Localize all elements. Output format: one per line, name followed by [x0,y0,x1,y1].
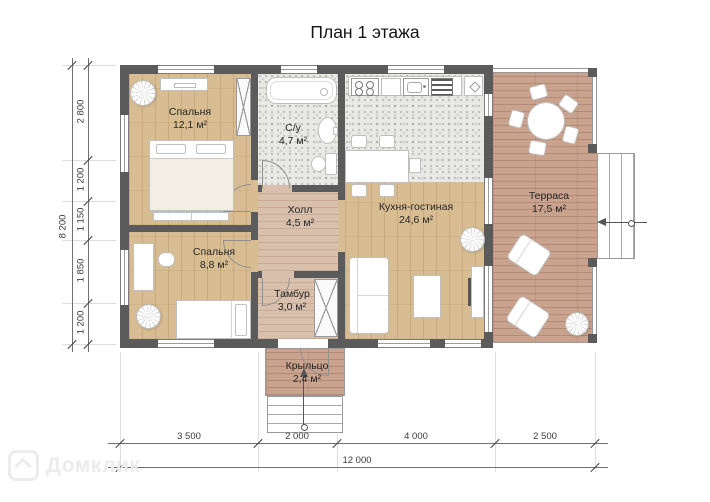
room-area: 4,5 м² [286,217,314,230]
extension-line [258,352,259,472]
room-name: Терраса [529,190,569,203]
page-title: План 1 этажа [240,22,490,43]
sofa-cushion-line [358,295,388,296]
burner [366,88,374,96]
room-area: 12,1 м² [169,119,211,132]
dimension-line-vertical-total [72,58,73,352]
room-label-hall: Холл 4,5 м² [286,204,314,230]
window [445,339,481,348]
dim-label: 3 500 [159,431,219,442]
bed [149,140,234,211]
bed-blanket-line [231,301,232,338]
room-area: 4,7 м² [279,135,307,148]
room-area: 8,8 м² [193,259,235,272]
coffee-table [413,275,441,318]
room-name: Крыльцо [286,360,329,373]
dim-label: 1 200 [76,158,87,202]
window [281,65,317,74]
dresser [160,78,208,91]
door-leaf [223,240,251,241]
dim-label-total: 12 000 [327,455,387,466]
watermark-text: Домклик [46,454,140,478]
chair [379,135,395,148]
wardrobe [314,279,338,337]
watermark-logo-icon [8,450,39,481]
dim-label: 2 800 [76,90,87,134]
kitchen-counter [348,76,462,96]
terrace-edge [493,342,597,343]
window [378,339,430,348]
fridge [464,76,483,96]
window [484,94,493,116]
dresser-handle [174,83,196,88]
window [120,115,129,172]
chair [351,135,367,148]
window [158,339,214,348]
terrace-door [484,178,493,224]
railing-post [588,258,597,267]
terrace-stairs [597,153,635,259]
house-icon [15,458,32,475]
dimension-line-vertical-segments [88,58,89,352]
railing-post [588,144,597,153]
dim-label-total: 8 200 [58,205,69,249]
plant [131,81,155,105]
extension-line [495,352,496,472]
side-table [409,158,421,173]
chair [379,184,395,197]
round-table [527,102,565,140]
fridge-mark [469,81,480,92]
room-label-porch: Крыльцо 2,4 м² [286,360,329,386]
dim-label: 2 500 [515,431,575,442]
burner [355,88,363,96]
passage-opening [338,200,345,252]
bed-bench [153,212,229,221]
room-area: 2,4 м² [286,373,329,386]
dim-label: 4 000 [386,431,446,442]
dining-table [345,150,409,183]
room-label-terrace: Терраса 17,5 м² [529,190,569,216]
railing-post [588,334,597,343]
window [158,65,214,74]
railing-post [588,68,597,77]
room-name: Холл [286,204,314,217]
arrowhead-icon [597,218,606,226]
bathtub [266,77,337,104]
room-name: С/у [279,122,307,135]
window [120,250,129,305]
dimension-line-horizontal-segments [108,443,608,444]
pillow [156,144,186,154]
stairs-direction-arrow [601,222,647,223]
room-label-vestibule: Тамбур 3,0 м² [274,288,310,314]
toilet-bowl [311,156,326,172]
partition-wall [129,225,251,232]
entrance-door-opening [278,339,328,348]
cabinet [381,78,401,96]
chair [351,184,367,197]
room-area: 17,5 м² [529,203,569,216]
pillow [196,144,226,154]
window [388,65,444,74]
plant [566,313,588,335]
wardrobe [236,78,251,136]
sink-faucet [333,127,338,135]
room-name: Спальня [169,106,211,119]
oven [431,78,453,96]
terrace-railing-right [592,258,597,338]
door-leaf [262,160,263,188]
dimension-line-horizontal-total [108,467,608,468]
stairs-start-marker [628,220,635,227]
stairs-start-marker [301,424,308,431]
toilet-tank [325,153,337,175]
plant [461,228,484,251]
lounge-fold-line [516,239,532,263]
room-name: Кухня-гостиная [379,201,453,214]
door-opening [262,271,294,278]
dim-label: 2 000 [267,431,327,442]
room-label-bedroom1: Спальня 12,1 м² [169,106,211,132]
tv [468,278,471,306]
room-area: 24,6 м² [379,214,453,227]
terrace-railing-top [493,68,597,73]
room-area: 3,0 м² [274,301,310,314]
bed-blanket [150,158,233,210]
lounge-fold-line [515,301,531,325]
bed [176,300,251,339]
room-label-kitchen-living: Кухня-гостиная 24,6 м² [379,201,453,227]
room-name: Тамбур [274,288,310,301]
faucet [423,85,426,88]
door-opening [251,180,258,212]
tv-stand [471,266,484,318]
kitchen-sink [403,78,429,96]
window [484,266,493,332]
dim-label: 1 200 [76,301,87,345]
terrace-railing-right [592,73,597,153]
dim-label: 1 850 [76,249,87,293]
exterior-wall-left [120,65,129,348]
plant [137,305,160,328]
watermark: Домклик [8,450,140,481]
extension-line [595,352,596,472]
door-opening [251,240,258,272]
pillow [235,304,247,336]
door-leaf [262,278,263,306]
stove [351,78,379,96]
floor-plan-drawing: План 1 этажа [0,0,710,502]
desk-chair [158,252,175,267]
desk [133,243,154,291]
room-label-bathroom: С/у 4,7 м² [279,122,307,148]
room-label-bedroom2: Спальня 8,8 м² [193,246,235,272]
bathtub-drain [320,88,328,96]
dim-label: 1 150 [76,198,87,242]
chair [528,140,547,157]
room-name: Спальня [193,246,235,259]
sink-bowl [407,82,422,93]
sofa [349,257,389,334]
